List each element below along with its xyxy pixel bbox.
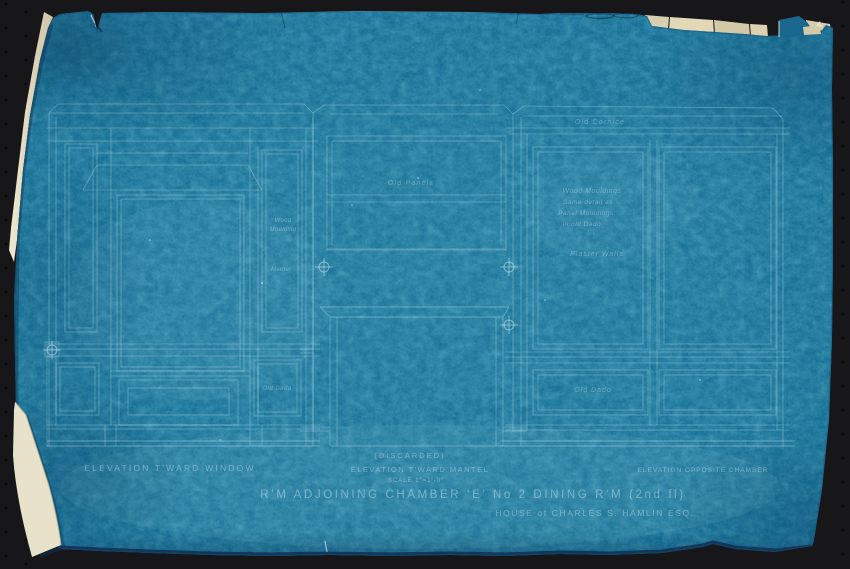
svg-text:Old Cornice: Old Cornice xyxy=(575,119,625,126)
svg-text:Moulding: Moulding xyxy=(270,227,297,233)
svg-text:HOUSE of CHARLES S. HAMLIN ESQ: HOUSE of CHARLES S. HAMLIN ESQ. xyxy=(495,508,694,518)
svg-text:Wood: Wood xyxy=(275,218,292,224)
svg-text:ELEVATION T'WARD WINDOW: ELEVATION T'WARD WINDOW xyxy=(84,463,255,473)
svg-text:Panel Mouldings: Panel Mouldings xyxy=(558,210,614,217)
svg-text:Wood Mouldings: Wood Mouldings xyxy=(562,188,621,195)
svg-text:ELEVATION T'WARD MANTEL: ELEVATION T'WARD MANTEL xyxy=(351,465,490,474)
svg-text:Old Dado: Old Dado xyxy=(262,386,292,392)
svg-text:Plaster Walls: Plaster Walls xyxy=(570,251,624,258)
svg-text:(DISCARDED): (DISCARDED) xyxy=(374,451,445,460)
svg-text:Mantel: Mantel xyxy=(271,267,291,273)
svg-text:Old Dado: Old Dado xyxy=(574,387,612,394)
svg-text:Old Panels: Old Panels xyxy=(388,180,434,187)
svg-text:R’M ADJOINING CHAMBER ‘E’ No 2: R’M ADJOINING CHAMBER ‘E’ No 2 DINING R’… xyxy=(260,489,685,501)
svg-text:ELEVATION OPPOSITE CHAMBER: ELEVATION OPPOSITE CHAMBER xyxy=(638,467,769,474)
svg-text:in old Dado: in old Dado xyxy=(563,221,601,228)
svg-text:Same detail as: Same detail as xyxy=(563,199,613,206)
svg-text:SCALE 1″=1'-0″: SCALE 1″=1'-0″ xyxy=(388,478,444,484)
